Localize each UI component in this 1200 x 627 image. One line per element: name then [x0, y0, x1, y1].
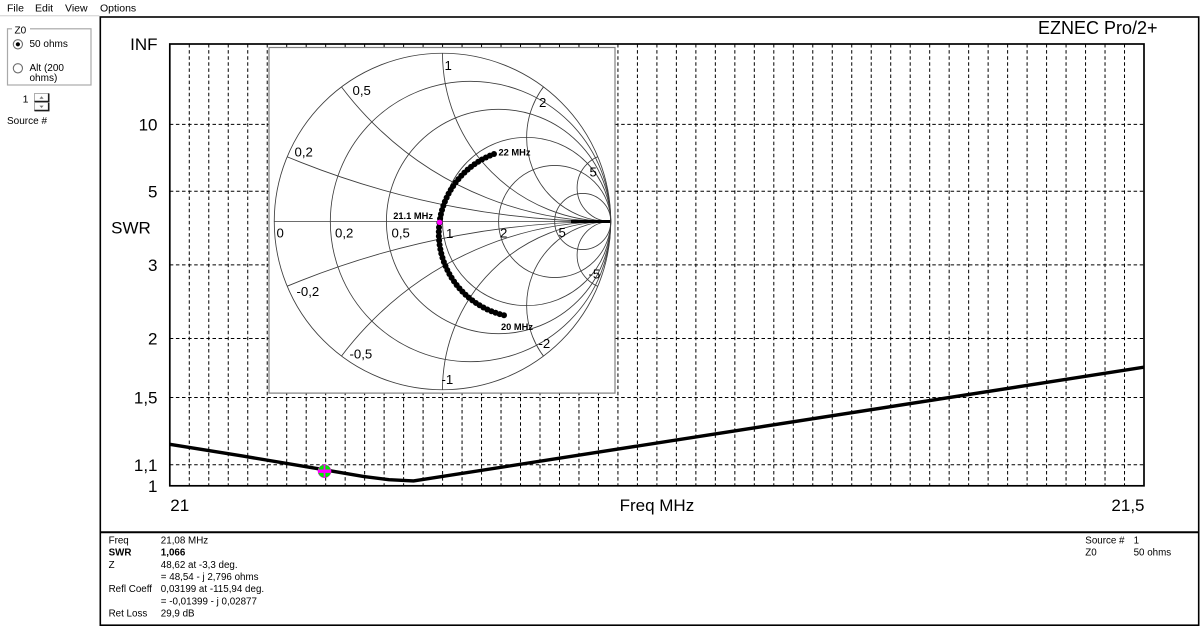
svg-text:File: File — [7, 2, 24, 14]
svg-text:SWR: SWR — [109, 548, 132, 559]
svg-text:2: 2 — [500, 226, 507, 241]
svg-text:5: 5 — [148, 183, 157, 202]
svg-text:50 ohms: 50 ohms — [1134, 548, 1172, 559]
svg-text:0,5: 0,5 — [353, 83, 371, 98]
svg-text:Source #: Source # — [7, 116, 47, 127]
svg-text:1,1: 1,1 — [134, 456, 158, 475]
svg-text:0,03199 at -115,94 deg.: 0,03199 at -115,94 deg. — [161, 584, 264, 595]
svg-text:Ret Loss: Ret Loss — [109, 609, 148, 620]
svg-text:3: 3 — [148, 256, 157, 275]
svg-text:0: 0 — [277, 226, 284, 241]
svg-text:EZNEC Pro/2+: EZNEC Pro/2+ — [1038, 18, 1158, 38]
svg-text:1: 1 — [1134, 535, 1139, 546]
svg-text:21: 21 — [170, 496, 189, 515]
svg-text:-5: -5 — [589, 267, 601, 282]
svg-text:-1: -1 — [442, 372, 454, 387]
svg-text:Z: Z — [109, 560, 115, 571]
svg-text:5: 5 — [559, 225, 566, 240]
svg-text:Freq: Freq — [109, 535, 129, 546]
svg-text:21,5: 21,5 — [1111, 496, 1144, 515]
svg-text:50 ohms: 50 ohms — [30, 39, 68, 50]
svg-text:-2: -2 — [539, 336, 551, 351]
svg-text:20 MHz: 20 MHz — [501, 322, 533, 332]
svg-text:Refl Coeff: Refl Coeff — [109, 584, 153, 595]
svg-text:0,2: 0,2 — [295, 145, 313, 160]
svg-text:21.1 MHz: 21.1 MHz — [393, 211, 433, 221]
svg-text:0,2: 0,2 — [335, 226, 353, 241]
svg-text:ohms): ohms) — [30, 73, 58, 84]
svg-text:Z0: Z0 — [1085, 548, 1097, 559]
svg-text:-0,5: -0,5 — [350, 347, 373, 362]
svg-text:1,066: 1,066 — [161, 548, 186, 559]
svg-text:1: 1 — [446, 226, 453, 241]
svg-text:Freq MHz: Freq MHz — [620, 496, 695, 515]
svg-text:Options: Options — [100, 2, 136, 14]
svg-text:-0,2: -0,2 — [297, 284, 320, 299]
svg-text:1,5: 1,5 — [134, 389, 158, 408]
svg-text:21,08 MHz: 21,08 MHz — [161, 535, 208, 546]
svg-text:2: 2 — [539, 95, 546, 110]
svg-text:Edit: Edit — [35, 2, 53, 14]
svg-text:48,62 at -3,3 deg.: 48,62 at -3,3 deg. — [161, 560, 238, 571]
svg-text:Source #: Source # — [1085, 535, 1125, 546]
svg-text:0,5: 0,5 — [392, 226, 410, 241]
svg-text:= -0,01399 - j 0,02877: = -0,01399 - j 0,02877 — [161, 596, 257, 607]
svg-text:1: 1 — [23, 93, 29, 105]
svg-text:Z0: Z0 — [15, 25, 27, 36]
svg-text:= 48,54 - j 2,796 ohms: = 48,54 - j 2,796 ohms — [161, 572, 259, 583]
svg-text:1: 1 — [148, 477, 157, 496]
svg-text:29,9 dB: 29,9 dB — [161, 609, 195, 620]
svg-text:5: 5 — [590, 165, 597, 180]
svg-text:2: 2 — [148, 330, 157, 349]
svg-text:22 MHz: 22 MHz — [499, 147, 531, 157]
svg-text:1: 1 — [445, 58, 452, 73]
svg-text:10: 10 — [139, 116, 158, 135]
svg-text:View: View — [65, 2, 88, 14]
svg-text:INF: INF — [130, 35, 157, 54]
svg-text:SWR: SWR — [111, 219, 151, 238]
